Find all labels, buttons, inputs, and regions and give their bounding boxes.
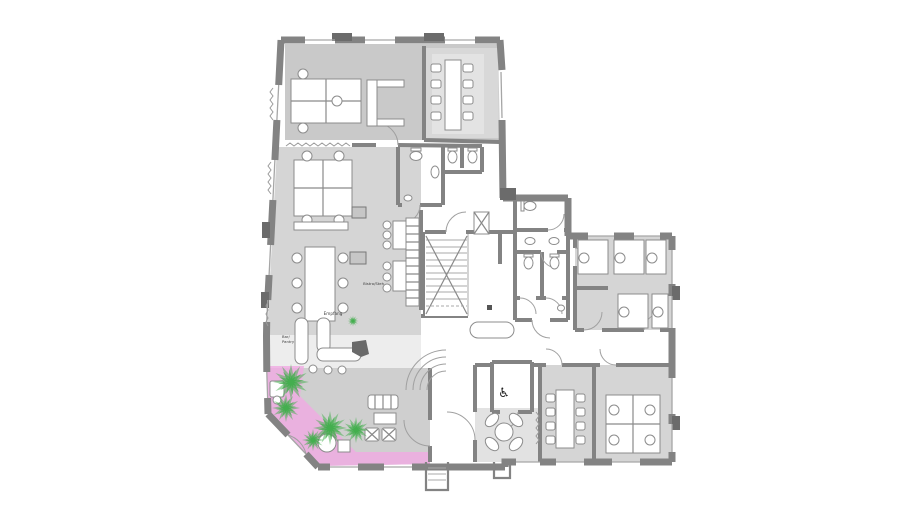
side-table	[352, 207, 366, 218]
floor-plan-page: Empfang Bar/ Pantry Bistro/Steh ♿	[0, 0, 912, 514]
corridor-bench	[470, 322, 514, 338]
bar-pantry-label-line2: Pantry	[282, 339, 295, 344]
staircase	[425, 234, 468, 316]
corridor-marker	[487, 305, 492, 310]
shelf-unit	[406, 218, 419, 306]
bistro-label: Bistro/Steh	[363, 281, 384, 286]
side-table	[350, 252, 366, 264]
desk-cluster-top-left	[291, 69, 361, 133]
desk-cluster-bottom-right	[606, 395, 660, 453]
elevator-shaft	[474, 212, 489, 234]
wheelchair-icon: ♿	[498, 386, 510, 401]
floor-plan-canvas: Empfang Bar/ Pantry Bistro/Steh ♿	[0, 0, 912, 514]
meeting-table	[292, 247, 348, 321]
reception-label: Empfang	[324, 311, 343, 316]
